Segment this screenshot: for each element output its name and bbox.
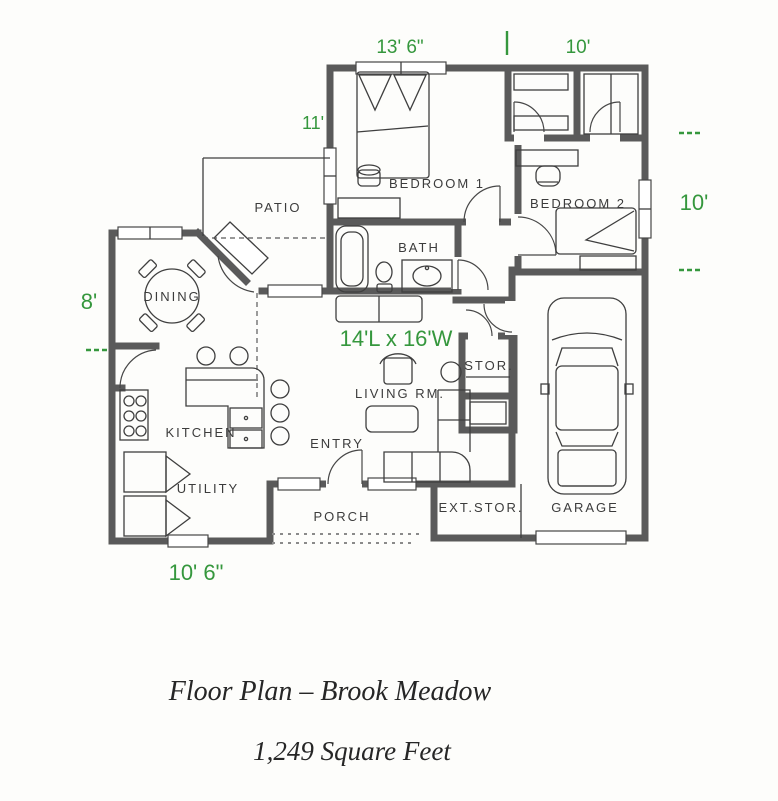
window-living-south-1 bbox=[278, 478, 320, 490]
patio-outline bbox=[203, 158, 330, 238]
label-porch: PORCH bbox=[314, 509, 371, 524]
floorplan-page: 13' 6" 10' 11' 10' 8' 10' 6" 14'L x 16'W… bbox=[0, 0, 778, 801]
label-garage: GARAGE bbox=[551, 500, 619, 515]
label-living: LIVING RM. bbox=[355, 386, 445, 401]
label-dining: DINING bbox=[143, 289, 201, 304]
window-bedroom2-right bbox=[639, 180, 651, 238]
dim-top-left: 13' 6" bbox=[376, 37, 423, 58]
bedroom1-bed-icon bbox=[357, 72, 429, 178]
closet-door-right bbox=[590, 102, 620, 132]
closet-door-left bbox=[514, 102, 544, 132]
window-kitchen-north bbox=[268, 285, 322, 297]
side-table-icon bbox=[441, 362, 461, 382]
dim-top-right: 10' bbox=[566, 37, 591, 58]
window-dining-top bbox=[118, 227, 182, 239]
bedroom1-nightstand-icon bbox=[358, 165, 380, 186]
plan-title: Floor Plan – Brook Meadow bbox=[169, 676, 491, 708]
label-utility: UTILITY bbox=[177, 481, 239, 496]
dim-bottom: 10' 6" bbox=[169, 560, 224, 585]
car-icon bbox=[541, 298, 633, 494]
stove-icon bbox=[120, 390, 148, 440]
window-utility-bottom bbox=[168, 535, 208, 547]
label-storage: STOR. bbox=[464, 358, 514, 373]
sectional-sofa-icon bbox=[384, 390, 470, 482]
armchair-icon bbox=[380, 354, 416, 384]
label-bedroom1: BEDROOM 1 bbox=[389, 176, 485, 191]
dryer-icon bbox=[124, 496, 190, 536]
plan-square-feet: 1,249 Square Feet bbox=[253, 736, 451, 767]
porch-outline bbox=[272, 534, 420, 543]
window-bedroom1-left bbox=[324, 148, 336, 204]
label-bedroom2: BEDROOM 2 bbox=[530, 196, 626, 211]
label-entry: ENTRY bbox=[310, 436, 364, 451]
storage-interior bbox=[466, 377, 510, 424]
coffee-table-icon bbox=[366, 406, 418, 432]
pantry-door bbox=[120, 350, 156, 388]
dim-living-size: 14'L x 16'W bbox=[340, 326, 453, 351]
bath-vanity-icon bbox=[402, 260, 452, 292]
window-living-south-2 bbox=[368, 478, 416, 490]
living-sofa-icon bbox=[336, 296, 422, 322]
bedroom2-chair-icon bbox=[536, 166, 560, 186]
label-bath: BATH bbox=[398, 240, 440, 255]
bedroom2-bed-icon bbox=[556, 208, 636, 270]
dim-left: 8' bbox=[81, 289, 97, 314]
dim-right: 10' bbox=[680, 190, 709, 215]
dim-upper-left: 11' bbox=[302, 113, 324, 133]
bedroom1-dresser-icon bbox=[338, 198, 400, 218]
label-patio: PATIO bbox=[254, 200, 301, 215]
label-kitchen: KITCHEN bbox=[165, 425, 236, 440]
label-ext-storage: EXT.STOR. bbox=[439, 500, 524, 515]
bedroom2-dresser-icon bbox=[516, 150, 578, 166]
floorplan-drawing: 13' 6" 10' 11' 10' 8' 10' 6" 14'L x 16'W… bbox=[0, 0, 778, 640]
bathtub-icon bbox=[336, 226, 368, 292]
garage-door bbox=[536, 531, 626, 544]
